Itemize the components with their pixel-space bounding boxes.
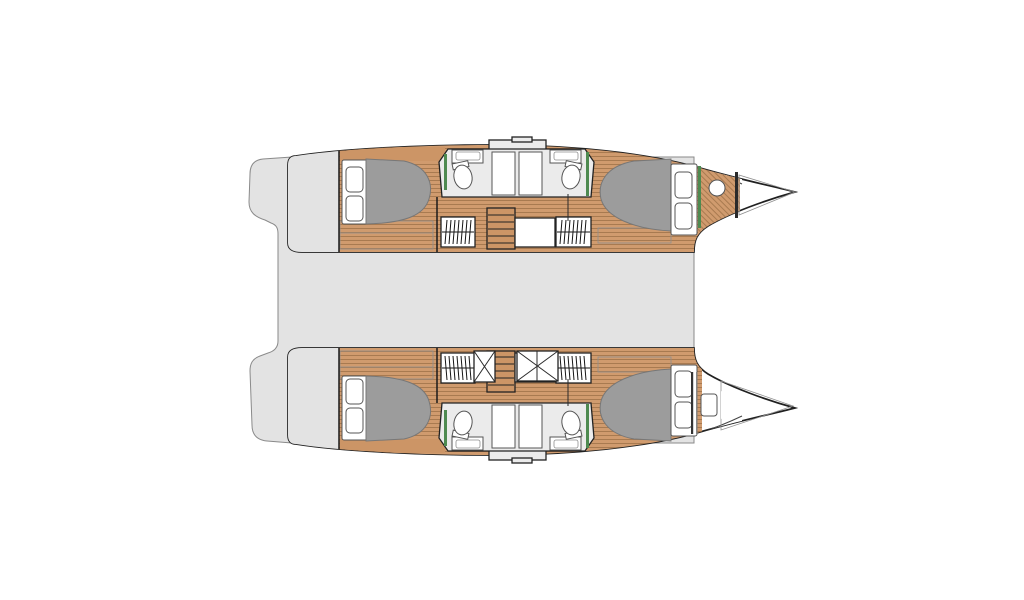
forepeak-sole — [698, 156, 740, 252]
door-accent-strip — [698, 166, 701, 228]
forepeak-bulkhead — [691, 372, 693, 434]
forepeak-bulkhead-line — [696, 372, 697, 434]
port-hull — [282, 137, 795, 256]
bow-bulkhead — [735, 172, 738, 218]
forepeak-washbasin — [709, 180, 725, 196]
forepeak-wood — [698, 156, 740, 252]
floor-plan-page — [0, 0, 1024, 600]
floor-plan-svg — [0, 0, 1024, 600]
deck-hatch — [701, 394, 717, 416]
